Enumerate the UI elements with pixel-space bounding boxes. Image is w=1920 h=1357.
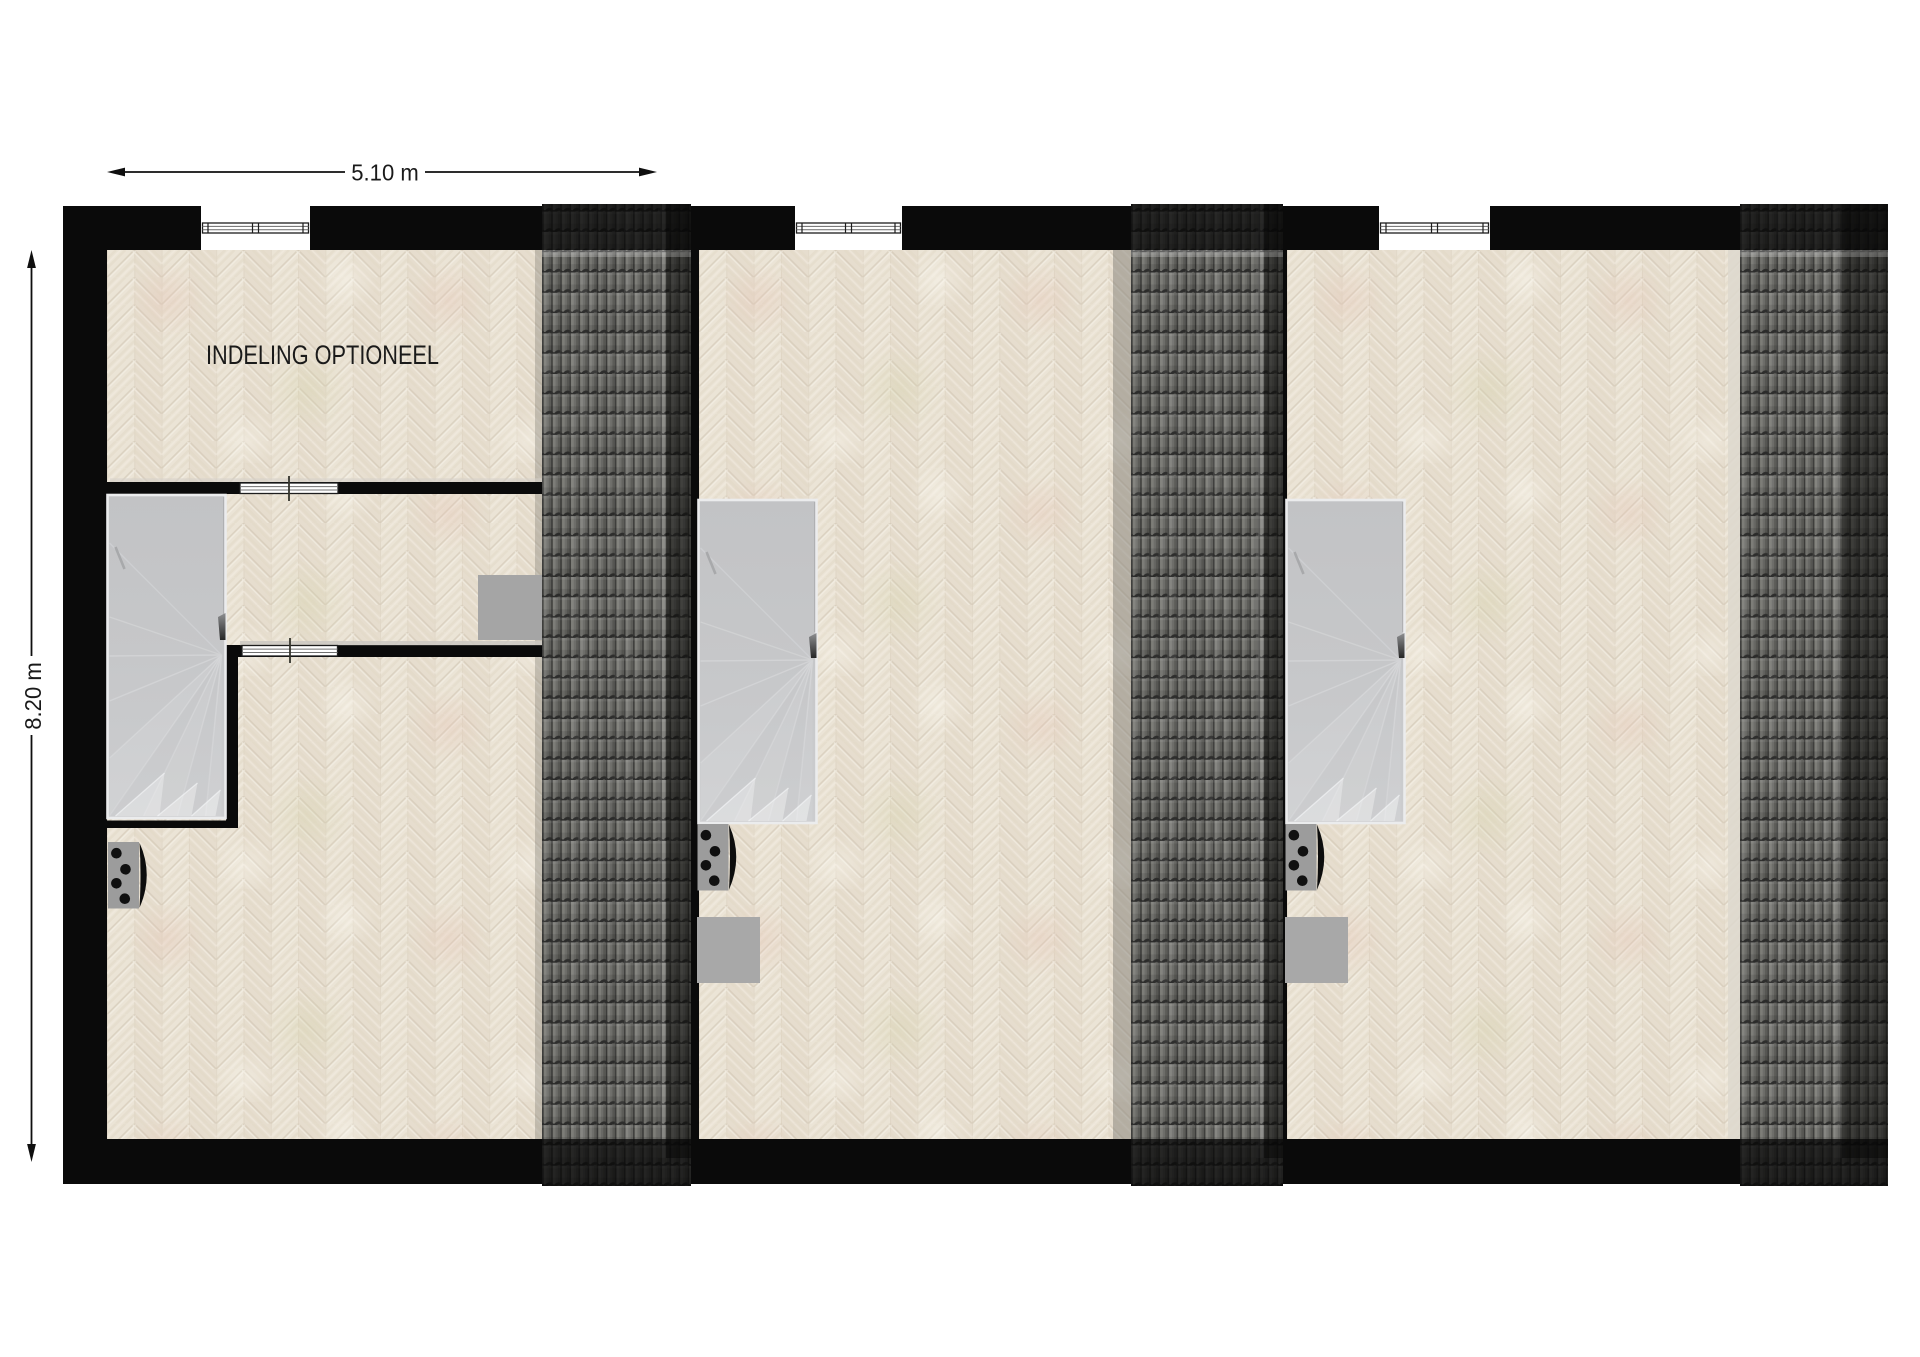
svg-text:8.20 m: 8.20 m	[19, 662, 46, 730]
svg-text:5.10 m: 5.10 m	[351, 159, 419, 186]
svg-text:INDELING OPTIONEEL: INDELING OPTIONEEL	[206, 341, 439, 371]
